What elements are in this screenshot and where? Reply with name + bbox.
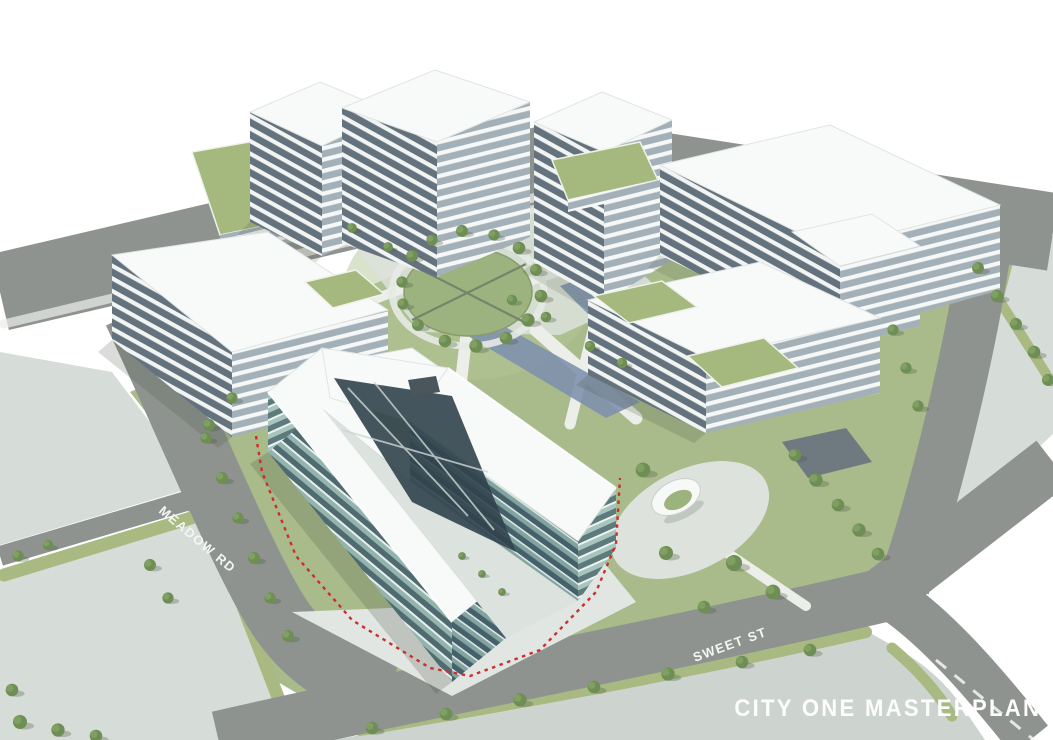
masterplan-title: CITY ONE MASTERPLAN bbox=[734, 694, 1041, 721]
masterplan-render: MEADOW RD SWEET ST CITY ONE MASTERPLAN bbox=[0, 0, 1053, 740]
masterplan-canvas: MEADOW RD SWEET ST CITY ONE MASTERPLAN bbox=[0, 0, 1053, 740]
